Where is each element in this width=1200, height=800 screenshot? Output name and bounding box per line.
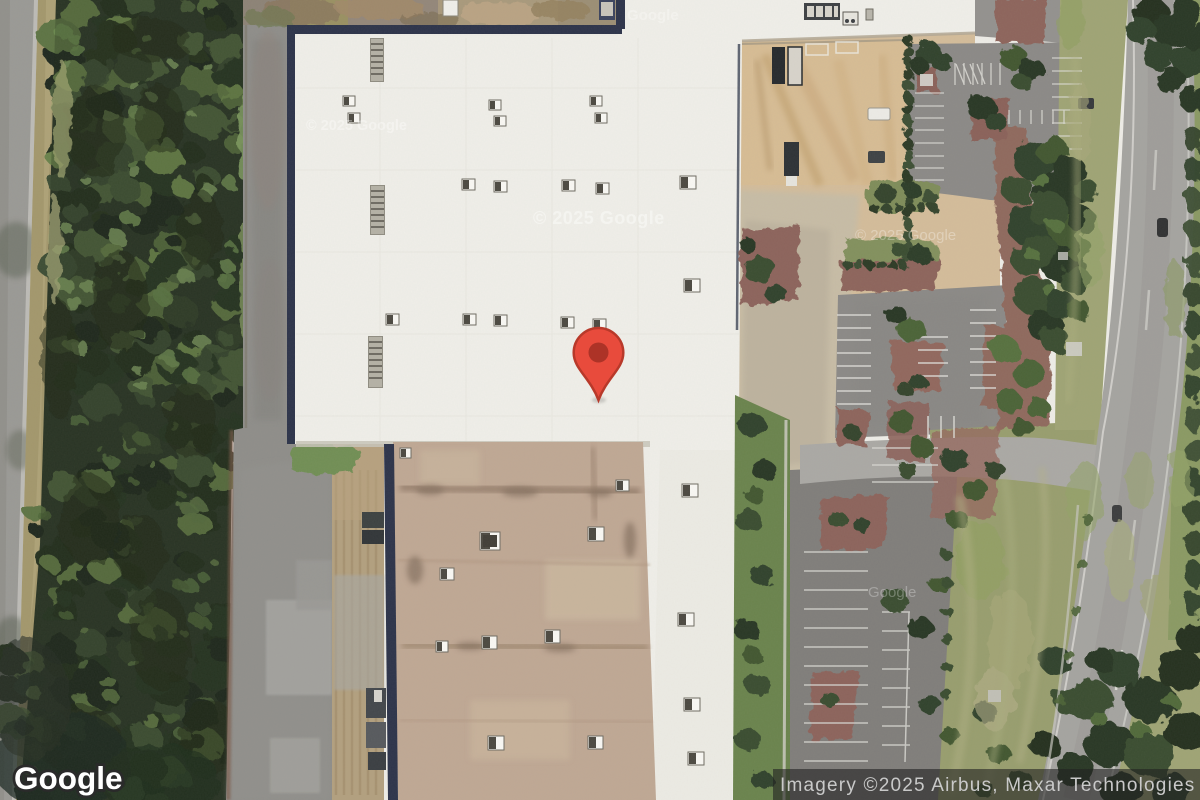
svg-text:© 2025 Google: © 2025 Google [533,208,665,228]
svg-text:© 2025 Google: © 2025 Google [855,227,956,244]
svg-text:Google: Google [868,584,916,601]
svg-text:Google: Google [14,760,123,796]
svg-text:Imagery ©2025 Airbus, Maxar Te: Imagery ©2025 Airbus, Maxar Technologies [780,775,1195,796]
svg-text:© 2025 Google: © 2025 Google [306,118,407,134]
svg-text:Google: Google [627,7,679,24]
